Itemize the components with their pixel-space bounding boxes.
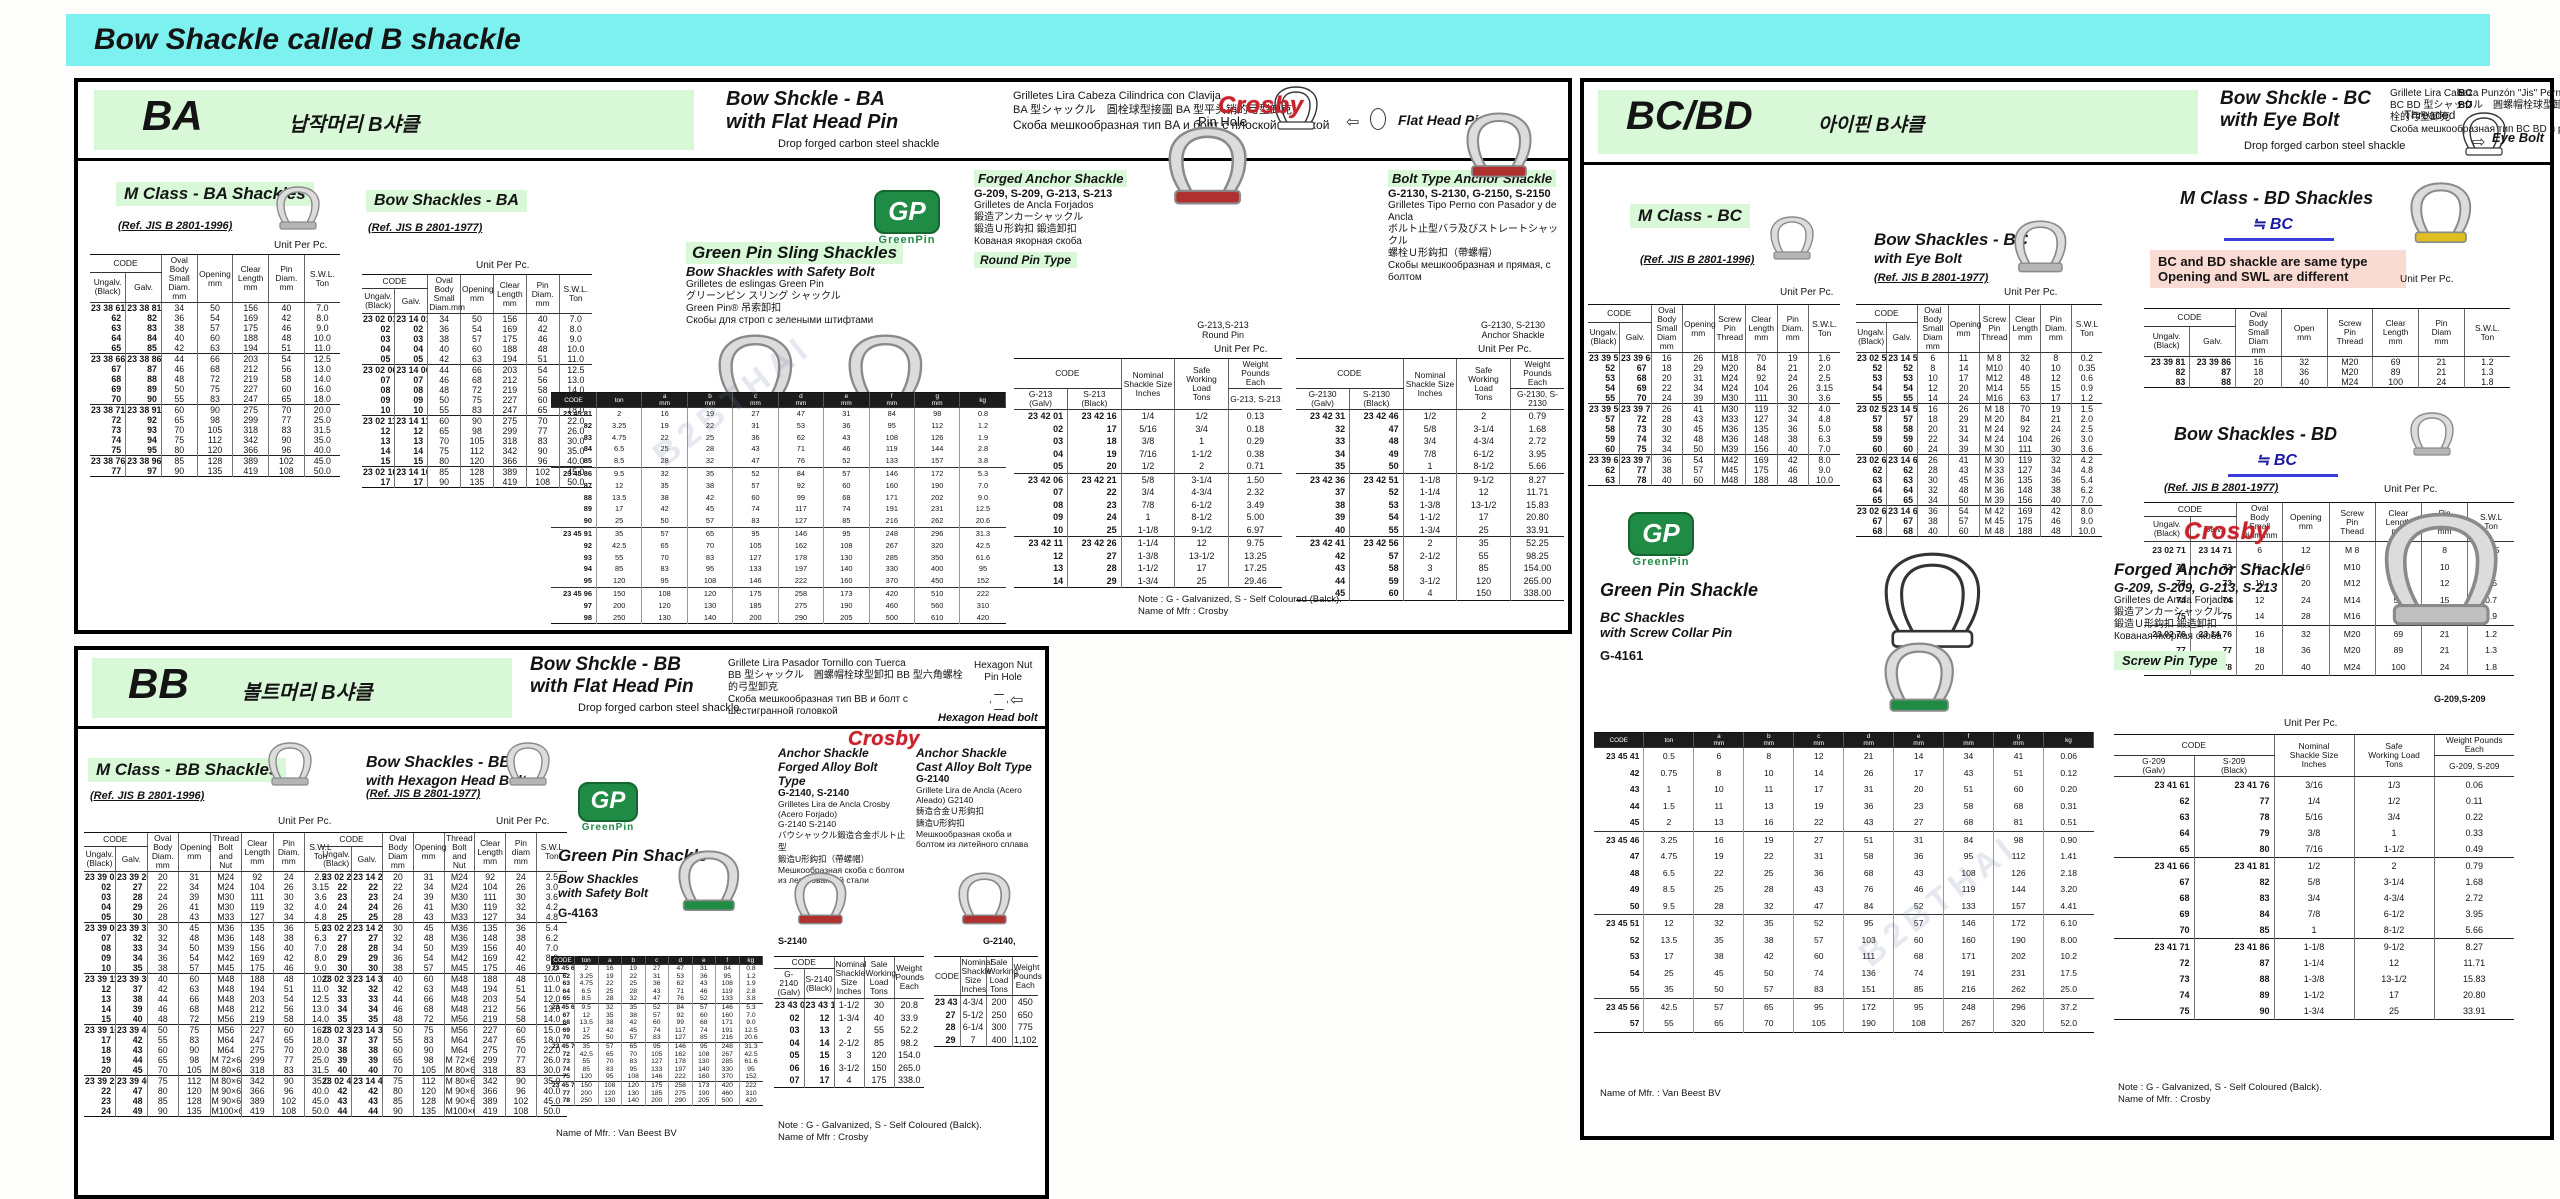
- ba-mclass-unit: Unit Per Pc.: [274, 240, 327, 251]
- bd-bow-approx: ≒ BC: [2256, 450, 2297, 470]
- bb-crosby-logo: Crosby: [848, 728, 920, 751]
- ba-gp-ru: Скобы для строп с зелеными штифтами: [686, 315, 996, 327]
- ba-bow-ref: (Ref. JIS B 2801-1977): [368, 222, 482, 234]
- ba-mclass-table: CODEOval Body Small Diam. mmOpening mmCl…: [90, 254, 340, 477]
- bb-mclass-ref: (Ref. JIS B 2801-1996): [90, 790, 204, 802]
- ba-flat-pin-icon: [1370, 108, 1386, 130]
- bb-hex-icon: [990, 694, 1008, 710]
- ba-gp-logo: GP GreenPin: [874, 190, 940, 246]
- bc-mclass-unit: Unit Per Pc.: [1780, 287, 1833, 298]
- ba-crosby-forged-es: Grilletes de Ancla Forjados: [974, 200, 1174, 212]
- crosby-logo: Crosby: [1218, 92, 1304, 120]
- bb-gp-table: CODEtonabcdefkg23 45 6121619274731840.86…: [551, 956, 763, 1106]
- bb-subtitle: Drop forged carbon steel shackle: [578, 702, 739, 716]
- bb-bow-label: Bow Shackles - BB with Hexagon Head Bolt…: [366, 754, 526, 800]
- ba-subtitle: Drop forged carbon steel shackle: [778, 138, 939, 152]
- ba-greenpin-block: Green Pin Sling Shackles Bow Shackles wi…: [686, 242, 996, 327]
- ba-title: Bow Shckle - BA with Flat Head Pin: [726, 88, 898, 134]
- bd-mclass-label: M Class - BD Shackles: [2180, 188, 2373, 209]
- bb-s2140-photo: [794, 872, 847, 937]
- ba-code: BA: [142, 92, 203, 140]
- bc-gp-text: Green Pin Shackle BC Shackles with Screw…: [1600, 580, 1800, 663]
- bc-code: BC/BD: [1626, 94, 1753, 139]
- bd-note: BC and BD shackle are same type Opening …: [2150, 250, 2406, 288]
- section-ba: BA 납작머리 B샤클 Bow Shckle - BA with Flat He…: [74, 78, 1572, 634]
- bb-mclass-table: CODEOval Body Diam. mmOpening mmThread B…: [84, 832, 336, 1117]
- bd-bow-label: Bow Shackles - BD: [2174, 424, 2337, 445]
- ba-es: Grilletes Lira Cabeza Cilindrica con Cla…: [1013, 90, 1373, 104]
- bb-korean: 볼트머리 B샤클: [242, 676, 372, 705]
- ba-title-line1: Bow Shckle - BA: [726, 88, 898, 111]
- bc-bow-label: Bow Shackles - BC with Eye Bolt (Ref. JI…: [1874, 230, 2028, 284]
- bb-hexbolt-label: Hexagon Head bolt: [938, 712, 1038, 724]
- ba-korean: 납작머리 B샤클: [289, 108, 419, 137]
- bc-header: BC/BD 아이핀 B샤클 Bow Shckle - BC with Eye B…: [1584, 82, 2550, 165]
- ba-gp-label: Green Pin Sling Shackles: [686, 242, 903, 264]
- bb-hexnut-label: Hexagon Nut Pin Hole: [974, 660, 1032, 684]
- ba-g213-unit: Unit Per Pc.: [1214, 344, 1267, 355]
- bb-title: Bow Shckle - BB with Flat Head Pin: [530, 654, 694, 698]
- bc-crosby-logo: Crosby: [2184, 518, 2270, 546]
- bc-bow-photo: [2014, 220, 2067, 285]
- ba-crosby-forged-ru: Кованая якорная скоба: [974, 236, 1174, 248]
- bd-mclass-table: CODEOval Body Small Diam mmOpen mmScrew …: [2144, 308, 2510, 388]
- bc-crosby-text: Forged Anchor Shackle G-209, S-209, G-21…: [2114, 560, 2344, 670]
- ba-crosby-forged-cn: 鍛造Ｕ形鈎扣 鍛造卸扣: [974, 224, 1174, 236]
- bb-g2140-photo: [958, 872, 1011, 937]
- bd-mclass-unit: Unit Per Pc.: [2400, 274, 2453, 285]
- bb-bow-unit: Unit Per Pc.: [496, 816, 549, 827]
- bb-g2140-table: CODENominal Shackle Size InchesSale Work…: [774, 956, 924, 1088]
- bb-header-badge: BB 볼트머리 B샤클: [92, 658, 512, 718]
- bc-mclass-photo: [1770, 216, 1814, 271]
- page-banner: Bow Shackle called B shackle: [66, 14, 2490, 66]
- bc-screwpin-label: Screw Pin Type: [2114, 651, 2226, 670]
- ba-crosby-note: Note : G - Galvanized, S - Self Coloured…: [1138, 594, 1342, 619]
- bc-g209-table: CODENominal Shackle Size InchesSafe Work…: [2114, 734, 2514, 1020]
- bc-gp-logo: GP GreenPin: [1628, 512, 1694, 568]
- ba-crosby-forged-models: G-209, S-209, G-213, S-213: [974, 188, 1174, 200]
- ba-bow-unit: Unit Per Pc.: [476, 260, 529, 271]
- bc-crosby-note: Note : G - Galvanized, S - Self Coloured…: [2118, 1082, 2322, 1107]
- bd-photo: [2410, 182, 2472, 257]
- bb-arrow-icon: ⇦: [1010, 690, 1023, 710]
- bb-gp-mfr: Name of Mfr. : Van Beest BV: [556, 1128, 677, 1140]
- bc-subtitle: Drop forged carbon steel shackle: [2244, 140, 2405, 154]
- bc-gp-photo: [1884, 642, 1954, 727]
- ba-bow-label: Bow Shackles - BA: [366, 190, 527, 212]
- gp-logo-name: GreenPin: [874, 234, 940, 246]
- bb-code: BB: [128, 660, 189, 708]
- bd-mclass-approx: ≒ BC: [2252, 214, 2293, 234]
- ba-gp-table: CODEtona mmb mmc mmd mme mmf mmg mmkg23 …: [551, 392, 1006, 624]
- ba-header: BA 납작머리 B샤클 Bow Shckle - BA with Flat He…: [78, 82, 1568, 161]
- ba-crosby-forged-ja: 鍛造アンカーシャックル: [974, 212, 1174, 224]
- ba-crosby-photo-left: [1168, 126, 1247, 221]
- bb-gp-photo: [678, 850, 740, 925]
- ba-gp-es: Grilletes de eslingas Green Pin: [686, 279, 996, 291]
- section-bcbd: BC/BD 아이핀 B샤클 Bow Shckle - BC with Eye B…: [1580, 78, 2554, 1140]
- ba-arrow-icon: ⇦: [1346, 112, 1359, 132]
- ba-crosby-bolt-cn: 螺栓Ｕ形鈎扣（帶螺帽）: [1388, 248, 1563, 260]
- bc-gp-table: CODEtona mmb mmc mmd mme mmf mmg mmkg23 …: [1594, 732, 2094, 1033]
- bb-s2140-cap: S-2140: [778, 936, 807, 946]
- bc-korean: 아이핀 B샤클: [1818, 110, 1924, 137]
- ba-crosby-bolt-es: Grilletes Tipo Perno con Pasador y de An…: [1388, 200, 1563, 224]
- bb-crosby-note: Note : G - Galvanized, S - Self Coloured…: [778, 1120, 982, 1145]
- section-bb: BB 볼트머리 B샤클 Bow Shckle - BB with Flat He…: [74, 646, 1049, 1199]
- bd-bow-unit: Unit Per Pc.: [2384, 484, 2437, 495]
- bb-header: BB 볼트머리 B샤클 Bow Shckle - BB with Flat He…: [78, 650, 1045, 729]
- ba-crosby-forged-title: Forged Anchor Shackle: [974, 170, 1127, 187]
- bc-arrow-icon: ⇨: [2472, 132, 2485, 152]
- gp-logo-icon: GP: [874, 190, 940, 234]
- ba-mclass-ref: (Ref. JIS B 2801-1996): [118, 220, 232, 232]
- bb-gp-logo: GP GreenPin: [578, 782, 638, 833]
- ba-crosby-bolt-ja: ボルト止型バラ及びストレートシャックル: [1388, 224, 1563, 248]
- bb-bow-photo: [506, 742, 550, 797]
- bb-g2140cast-table: CODENominal Shackle Size InchesSale Work…: [934, 956, 1038, 1047]
- bc-gp-mfr: Name of Mfr. : Van Beest BV: [1600, 1088, 1721, 1100]
- ba-title-line2: with Flat Head Pin: [726, 111, 898, 134]
- bc-mclass-table: CODEOval Body Small Diam mmOpening mmScr…: [1588, 304, 1840, 486]
- ba-crosby-cap-left: G-213,S-213 Round Pin: [1168, 320, 1278, 341]
- bd-bow-ref: (Ref. JIS B 2801-1977): [2164, 482, 2278, 494]
- ba-g213-table: CODENominal Shackle Size InchesSafe Work…: [1014, 358, 1282, 588]
- bb-g2140-cap: G-2140,: [983, 936, 1016, 946]
- bc-bow-unit: Unit Per Pc.: [2004, 287, 2057, 298]
- ba-crosby-roundpin-label: Round Pin Type: [974, 252, 1077, 268]
- ba-mclass-shackle-photo: [276, 186, 320, 241]
- ba-gp-ja: グリーンピン スリング シャックル: [686, 291, 996, 303]
- bb-bow-table: CODEOval Body Diam mmOpening mmThread Bo…: [321, 832, 567, 1117]
- ba-g2130-unit: Unit Per Pc.: [1478, 344, 1531, 355]
- ba-crosby-cap-right: G-2130, S-2130 Anchor Shackle: [1458, 320, 1568, 341]
- bc-bow-table: CODEOval Body Small Diam mmOpening mmScr…: [1856, 304, 2102, 537]
- ba-crosby-photo-right: [1466, 112, 1532, 192]
- ba-g2130-table: CODENominal Shackle Size InchesSafe Work…: [1296, 358, 1564, 601]
- ba-crosby-bolt-ru: Скобы мешкообразная и прямая, с болтом: [1388, 260, 1563, 284]
- bb-mclass-photo: [268, 742, 312, 797]
- bd-underline1: [2224, 238, 2334, 241]
- bd-bow-photo: [2410, 412, 2454, 467]
- ba-header-badge: BA 납작머리 B샤클: [94, 90, 694, 150]
- bc-mclass-ref: (Ref. JIS B 2801-1996): [1640, 254, 1754, 266]
- bc-eyebolt-label: Eye Bolt: [2492, 130, 2544, 145]
- ba-gp-cn: Green Pin® 吊索卸扣: [686, 303, 996, 315]
- ba-gp-sub: Bow Shackles with Safety Bolt: [686, 264, 996, 279]
- bc-crosby-photo: [2384, 512, 2498, 647]
- bc-title: Bow Shckle - BC with Eye Bolt: [2220, 88, 2371, 132]
- page-banner-title: Bow Shackle called B shackle: [94, 23, 521, 56]
- bb-crosby-left: Anchor Shackle Forged Alloy Bolt Type G-…: [778, 746, 908, 885]
- bc-bd-labels: BC BD: [2458, 88, 2472, 112]
- bb-crosby-right: Anchor Shackle Cast Alloy Bolt Type G-21…: [916, 746, 1036, 849]
- bb-mclass-label: M Class - BB Shackles: [88, 758, 286, 782]
- bc-crosby-cap: G-209,S-209: [2434, 694, 2486, 704]
- catalog-page: { "banner": "Bow Shackle called B shackl…: [0, 0, 2560, 1196]
- bc-header-badge: BC/BD 아이핀 B샤클: [1598, 90, 2198, 154]
- ba-ja: BA 型シャックル 圓栓球型接圖 BA 型平头销的弓型卸克: [1013, 104, 1373, 118]
- bb-langs: Grillete Lira Pasador Tornillo con Tuerc…: [728, 658, 968, 718]
- bc-mclass-label: M Class - BC: [1630, 204, 1750, 228]
- bc-g209-unit: Unit Per Pc.: [2284, 718, 2337, 729]
- bc-threaded-label: Threaded: [2404, 108, 2455, 122]
- bd-underline2: [2228, 474, 2338, 477]
- bb-mclass-unit: Unit Per Pc.: [278, 816, 331, 827]
- ba-crosby-forged: Forged Anchor Shackle G-209, S-209, G-21…: [974, 170, 1174, 269]
